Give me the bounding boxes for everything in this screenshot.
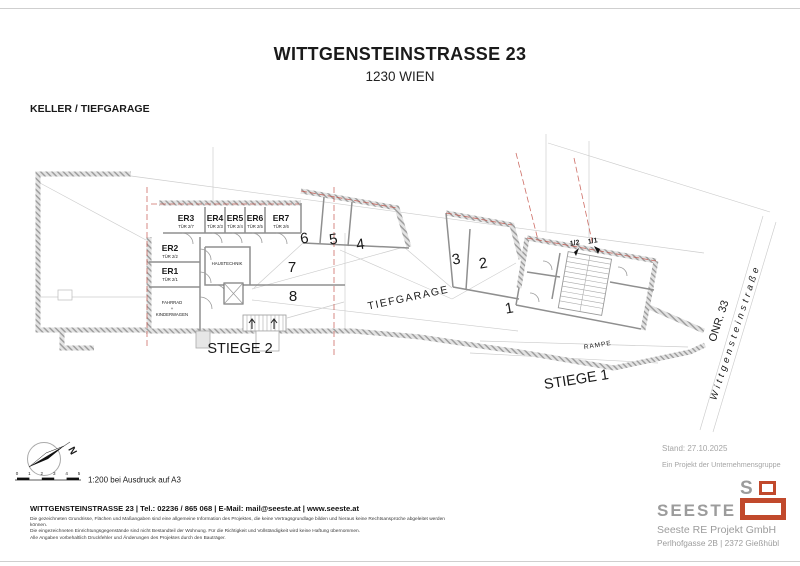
parking-space-1: 1 — [504, 299, 515, 317]
footer-contact-line: WITTGENSTEINSTRASSE 23 | Tel.: 02236 / 8… — [30, 504, 359, 513]
seeste-logo-letter: S — [740, 479, 753, 498]
footer-company-name: Seeste RE Projekt GmbH — [657, 524, 776, 536]
room-door-er7: TÜR 2/6 — [273, 224, 289, 229]
parking-space-4: 4 — [355, 236, 366, 254]
seeste-logo-square-icon — [759, 481, 776, 495]
seeste-logo-rect-icon — [740, 498, 786, 520]
scale-label: 1:200 bei Ausdruck auf A3 — [88, 476, 182, 485]
parking-space-8: 8 — [289, 288, 297, 305]
parking-space-5: 5 — [328, 231, 339, 249]
scale-tick-5: 5 — [78, 471, 81, 476]
page-edge-bottom — [0, 561, 800, 562]
room-door-er4: TÜR 2/3 — [207, 224, 223, 229]
courtyard-fixture — [58, 290, 72, 300]
room-door-er1: TÜR 2/1 — [162, 277, 178, 282]
footer-stand-date: Stand: 27.10.2025 — [662, 444, 727, 453]
room-label-er2: ER2 — [162, 243, 179, 253]
label-stiege2: STIEGE 2 — [207, 341, 272, 357]
room-label-haustechnik: HAUSTECHNIK — [212, 261, 243, 266]
room-label-fahrrad-plus: + — [171, 306, 174, 311]
label-unit-1-1: 1/1 — [587, 237, 598, 246]
label-tiefgarage: TIEFGARAGE — [367, 284, 450, 313]
seeste-wordmark: SEESTE — [657, 501, 736, 521]
page-edge-top — [0, 8, 800, 9]
scale-tick-3: 3 — [53, 471, 56, 476]
room-label-er5: ER5 — [227, 213, 244, 223]
scale-bar: 0 1 2 3 4 5 1:200 bei Ausdruck auf A3 — [15, 471, 182, 485]
room-label-er1: ER1 — [162, 266, 179, 276]
page-title: WITTGENSTEINSTRASSE 23 — [0, 44, 800, 65]
stairs-stiege2 — [243, 315, 286, 331]
label-stiege1: STIEGE 1 — [543, 367, 610, 393]
page-subtitle: 1230 WIEN — [0, 69, 800, 84]
room-label-er6: ER6 — [247, 213, 264, 223]
seeste-logo: SEESTE S — [657, 477, 787, 519]
footer-disclaimer: Die gezeichneten Grundrisse, Flächen und… — [30, 517, 460, 542]
disclaimer-line-3: Alle Angaben vorbehaltlich Druckfehler u… — [30, 536, 460, 542]
footer-group-line: Ein Projekt der Unternehmensgruppe — [662, 460, 781, 469]
room-label-er3: ER3 — [178, 213, 195, 223]
stairs-stiege1 — [558, 252, 611, 316]
room-door-er6: TÜR 2/5 — [247, 224, 263, 229]
disclaimer-line-1: Die gezeichneten Grundrisse, Flächen und… — [30, 517, 460, 529]
parking-space-6: 6 — [299, 230, 310, 248]
room-door-er3: TÜR 2/7 — [178, 224, 194, 229]
room-label-er4: ER4 — [207, 213, 224, 223]
room-door-er2: TÜR 2/2 — [162, 254, 178, 259]
room-door-er5: TÜR 2/4 — [227, 224, 243, 229]
drawing-title: KELLER / TIEFGARAGE — [30, 103, 150, 115]
room-label-kinderwagen: KINDERWAGEN — [156, 312, 188, 317]
scale-tick-0: 0 — [16, 471, 19, 476]
footer-company-address: Perlhofgasse 2B | 2372 Gießhübl — [657, 538, 779, 548]
scale-tick-1: 1 — [28, 471, 31, 476]
parking-space-2: 2 — [478, 254, 489, 272]
floor-plan: ER3 TÜR 2/7 ER4 TÜR 2/3 ER5 TÜR 2/4 ER6 … — [0, 128, 800, 490]
parking-space-7: 7 — [288, 259, 296, 276]
label-rampe: RAMPE — [583, 340, 612, 351]
room-label-er7: ER7 — [273, 213, 290, 223]
elevator — [224, 283, 243, 304]
parking-space-3: 3 — [451, 250, 462, 268]
scale-tick-4: 4 — [65, 471, 68, 476]
room-label-fahrrad: FAHRRAD — [162, 300, 183, 305]
compass-north-label: N — [65, 445, 78, 457]
